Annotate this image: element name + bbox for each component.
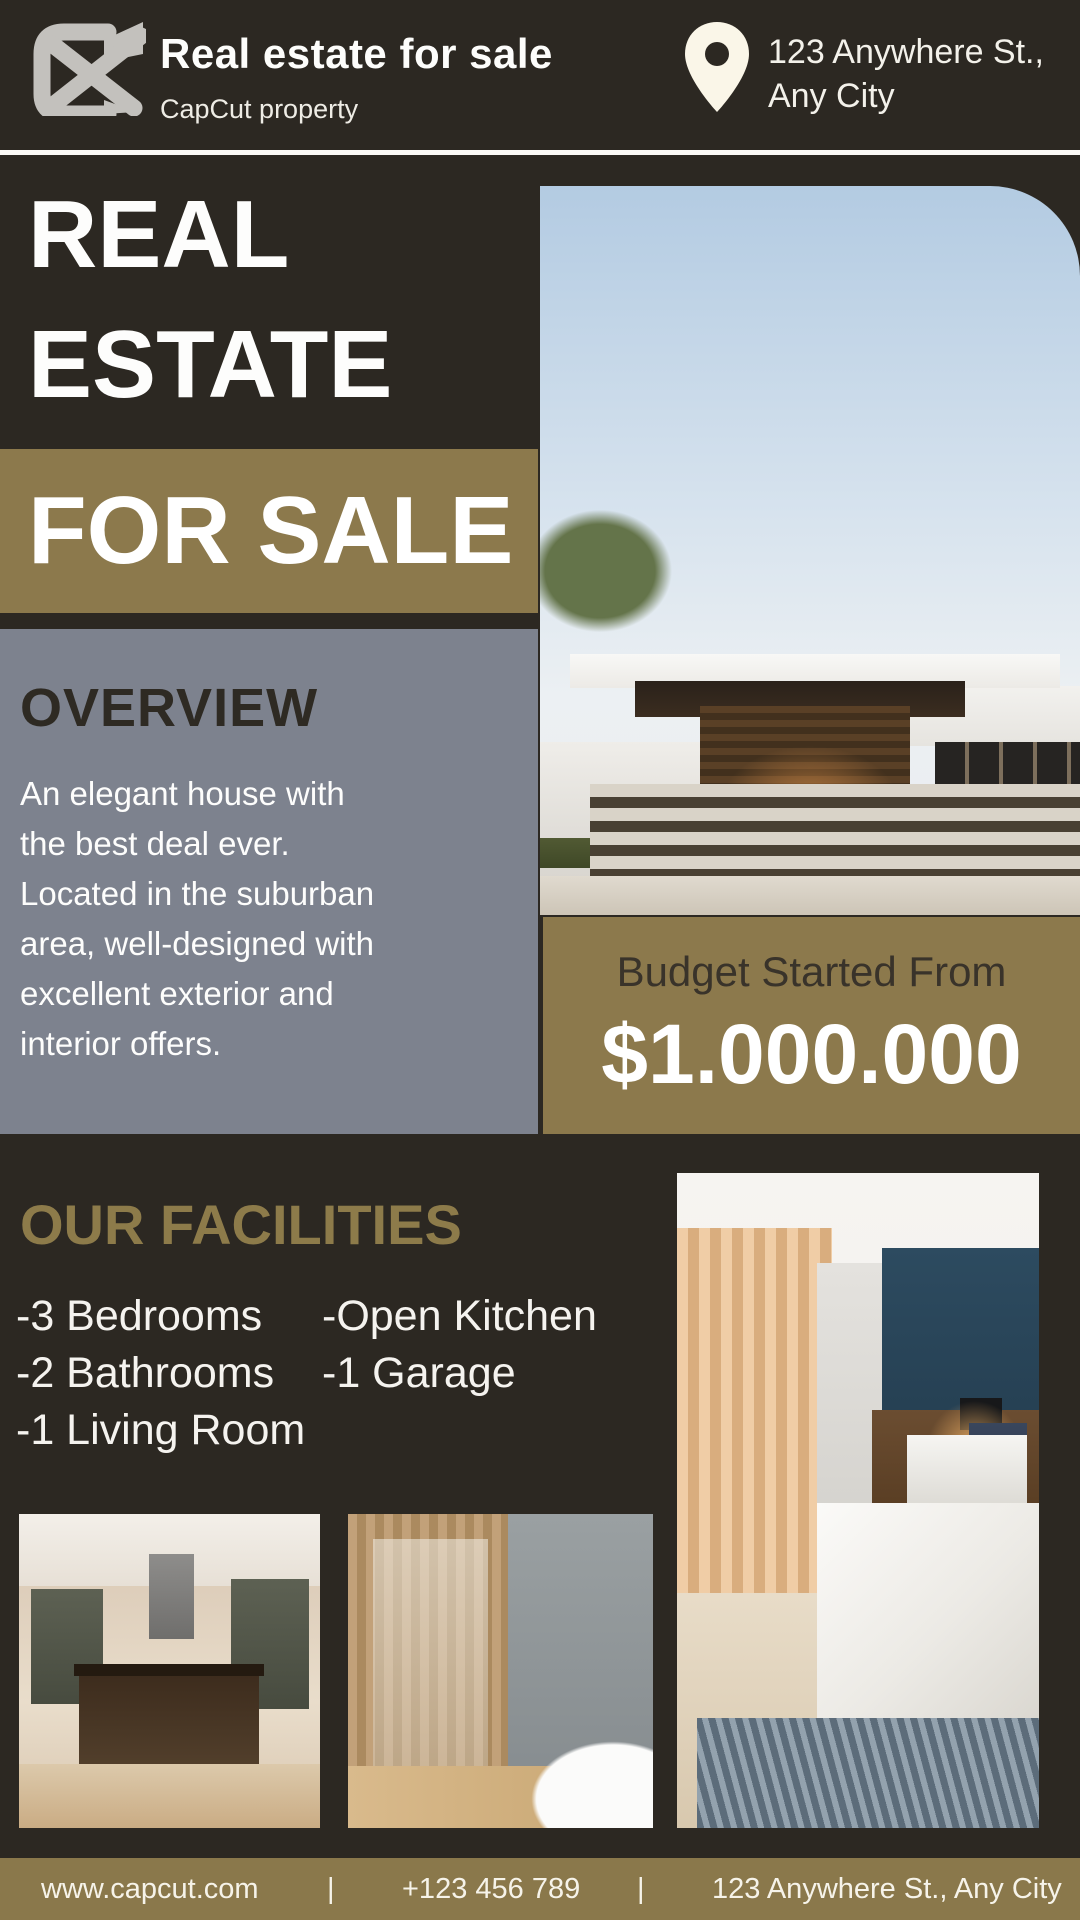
kitchen-photo [19,1514,320,1828]
facility-item: -1 Living Room [16,1402,305,1459]
header-address: 123 Anywhere St., Any City [768,30,1044,118]
footer-separator: | [637,1858,645,1920]
house-photo [540,186,1080,915]
footer-bar: www.capcut.com | +123 456 789 | 123 Anyw… [0,1858,1080,1920]
facility-item: -1 Garage [322,1345,597,1402]
for-sale-label: FOR SALE [28,449,513,613]
overview-body: An elegant house with the best deal ever… [20,769,518,1069]
for-sale-banner: FOR SALE [0,449,538,613]
footer-address: 123 Anywhere St., Any City [712,1858,1062,1920]
bedroom-photo [677,1173,1039,1828]
overview-heading: OVERVIEW [20,677,518,739]
header: Real estate for sale CapCut property 123… [0,0,1080,150]
footer-phone: +123 456 789 [402,1858,580,1920]
capcut-logo-icon [20,12,146,116]
facilities-column-1: -3 Bedrooms -2 Bathrooms -1 Living Room [16,1288,305,1459]
facilities-heading: OUR FACILITIES [20,1192,462,1257]
facility-item: -2 Bathrooms [16,1345,305,1402]
facility-item: -Open Kitchen [322,1288,597,1345]
budget-label: Budget Started From [617,948,1007,996]
facilities-column-2: -Open Kitchen -1 Garage [322,1288,597,1402]
footer-separator: | [327,1858,335,1920]
location-pin-icon [685,22,749,112]
brand-title: Real estate for sale [160,30,553,78]
budget-box: Budget Started From $1.000.000 [543,917,1080,1134]
facility-item: -3 Bedrooms [16,1288,305,1345]
flyer-page: Real estate for sale CapCut property 123… [0,0,1080,1920]
brand-block: Real estate for sale CapCut property [160,30,553,125]
hero-title: REAL ESTATE [28,170,392,430]
bathroom-photo [348,1514,653,1828]
divider-line [0,150,1080,155]
footer-website: www.capcut.com [41,1858,259,1920]
overview-panel: OVERVIEW An elegant house with the best … [0,629,538,1134]
brand-subtitle: CapCut property [160,94,553,125]
budget-price: $1.000.000 [601,1006,1021,1103]
